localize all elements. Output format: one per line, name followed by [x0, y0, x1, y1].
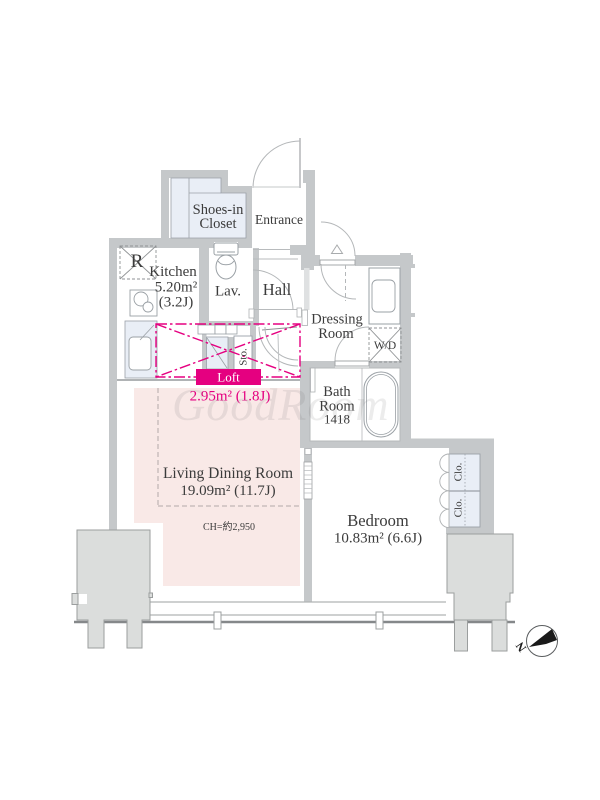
svg-text:CH=約2,950: CH=約2,950 — [203, 520, 255, 533]
svg-text:5.20m²: 5.20m² — [155, 280, 198, 296]
svg-text:Entrance: Entrance — [255, 212, 303, 227]
svg-text:19.09m² (11.7J): 19.09m² (11.7J) — [180, 483, 275, 499]
svg-text:Kitchen: Kitchen — [149, 264, 197, 280]
svg-text:Room: Room — [318, 326, 354, 342]
svg-text:Lav.: Lav. — [215, 284, 241, 300]
svg-text:Clo.: Clo. — [453, 498, 465, 517]
svg-text:Bedroom: Bedroom — [347, 511, 409, 530]
svg-text:R: R — [131, 251, 144, 272]
svg-text:Closet: Closet — [199, 216, 236, 232]
svg-text:(3.2J): (3.2J) — [159, 295, 194, 311]
svg-text:Sto.: Sto. — [238, 348, 250, 366]
svg-text:W/D: W/D — [374, 340, 396, 352]
svg-text:GoodRoom: GoodRoom — [172, 379, 390, 430]
svg-text:10.83m² (6.6J): 10.83m² (6.6J) — [334, 531, 422, 547]
svg-text:Clo.: Clo. — [453, 462, 465, 481]
svg-text:Living Dining Room: Living Dining Room — [163, 465, 293, 482]
svg-text:Hall: Hall — [263, 280, 292, 299]
